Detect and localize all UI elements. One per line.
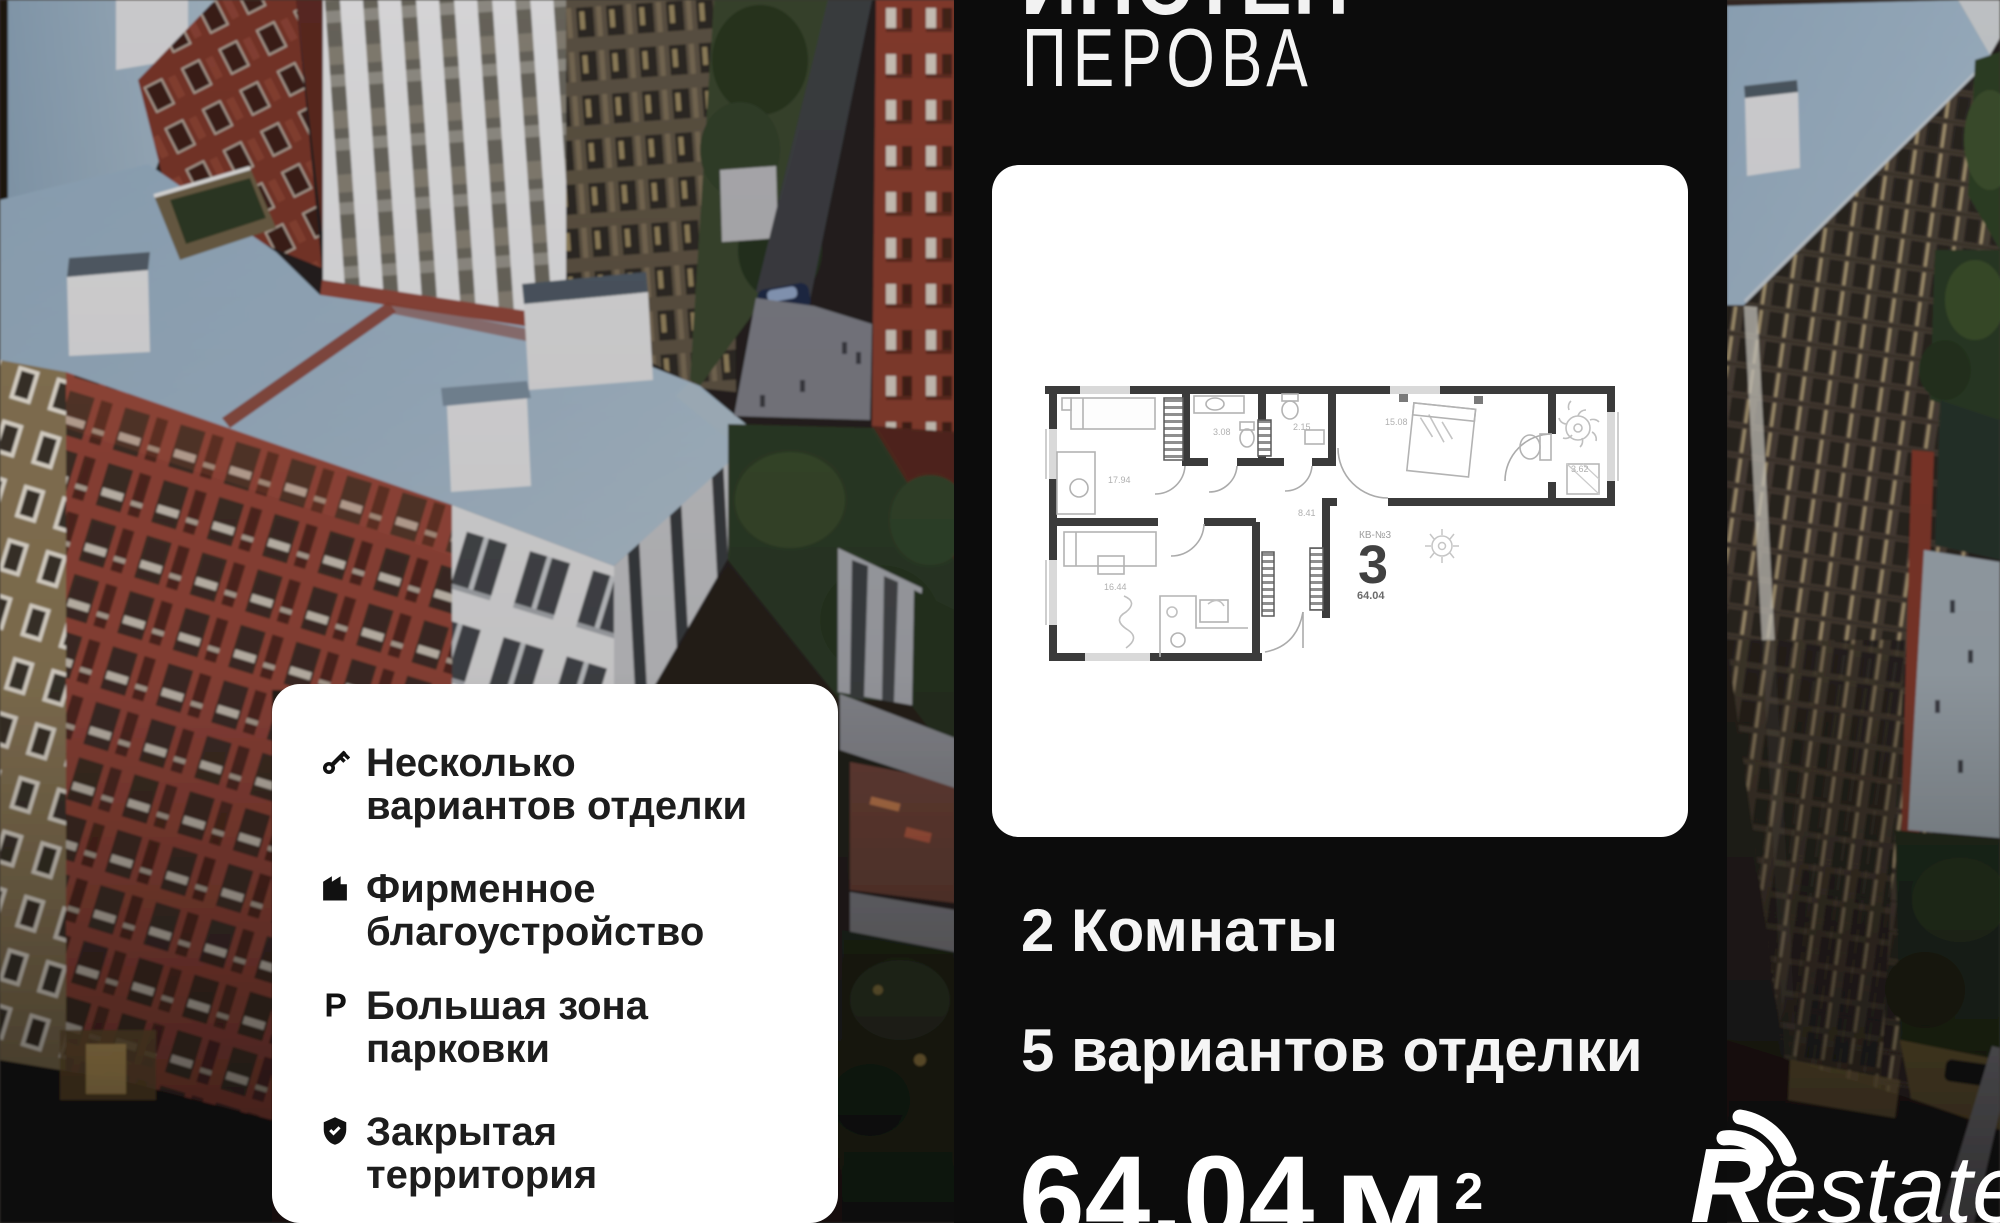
svg-text:3: 3 (1358, 535, 1388, 595)
svg-text:КВ-№3: КВ-№3 (1359, 530, 1392, 541)
svg-text:64.04: 64.04 (1357, 590, 1385, 602)
svg-text:3.08: 3.08 (1213, 427, 1231, 437)
svg-text:3.62: 3.62 (1571, 464, 1589, 474)
svg-text:estate: estate (1764, 1136, 2000, 1223)
svg-text:R: R (1690, 1127, 1767, 1223)
svg-text:16.44: 16.44 (1104, 582, 1127, 592)
svg-text:2.15: 2.15 (1293, 422, 1311, 432)
svg-text:8.41: 8.41 (1298, 508, 1316, 518)
svg-text:15.08: 15.08 (1385, 417, 1408, 427)
svg-text:P: P (324, 990, 347, 1020)
svg-text:17.94: 17.94 (1108, 475, 1131, 485)
